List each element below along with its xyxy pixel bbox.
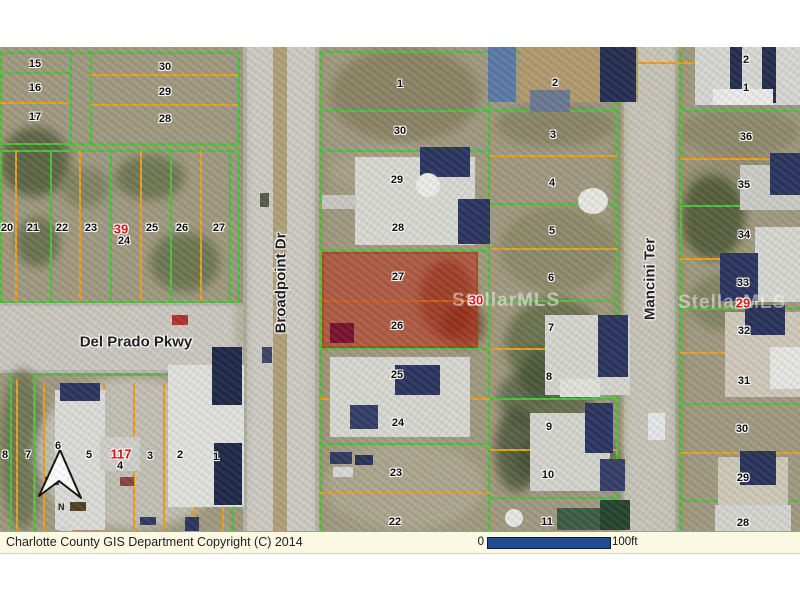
building-footprint	[322, 195, 356, 209]
lot-number: 4	[549, 177, 555, 189]
parcel-boundary	[490, 497, 618, 499]
lot-number: 4	[117, 460, 123, 472]
lot-number: 7	[25, 449, 31, 461]
vegetation-patch	[680, 175, 745, 260]
parcel-boundary	[110, 150, 112, 301]
building-footprint	[60, 383, 100, 401]
building-footprint	[578, 188, 608, 214]
lot-number: 29	[159, 86, 171, 98]
building-footprint	[598, 315, 628, 377]
lot-number: 28	[392, 222, 404, 234]
building-footprint	[416, 173, 440, 197]
parcel-boundary	[170, 150, 172, 301]
block-number: 39	[114, 222, 128, 237]
lot-number: 28	[159, 113, 171, 125]
parcel-boundary	[0, 150, 240, 152]
lot-number: 5	[549, 225, 555, 237]
lot-number: 30	[736, 423, 748, 435]
parcel-boundary	[490, 398, 618, 400]
parcel-boundary	[320, 348, 490, 350]
building-footprint	[70, 502, 86, 511]
street-label-mancini: Mancini Ter	[642, 238, 659, 320]
lot-number: 24	[392, 417, 404, 429]
lot-number: 6	[548, 272, 554, 284]
block-number: 117	[111, 447, 132, 462]
building-footprint	[648, 413, 665, 440]
lot-number: 3	[550, 129, 556, 141]
building-footprint	[585, 403, 613, 453]
parcel-boundary	[490, 248, 618, 250]
vegetation-patch	[60, 167, 110, 207]
lot-number: 17	[29, 111, 41, 123]
building-footprint	[505, 509, 523, 527]
lot-number: 26	[176, 222, 188, 234]
building-footprint	[355, 455, 373, 465]
building-footprint	[755, 227, 800, 302]
parcel-boundary	[229, 150, 231, 301]
lot-number: 36	[740, 131, 752, 143]
building-footprint	[262, 347, 272, 363]
lot-number: 35	[738, 179, 750, 191]
lot-number: 1	[743, 82, 749, 94]
lot-number: 1	[397, 78, 403, 90]
building-footprint	[600, 459, 625, 491]
building-footprint	[212, 347, 242, 405]
lot-number: 3	[147, 450, 153, 462]
lot-number: 29	[391, 174, 403, 186]
lot-number: 2	[743, 54, 749, 66]
lot-number: 21	[27, 222, 39, 234]
lot-number: 25	[146, 222, 158, 234]
lot-number: 2	[552, 77, 558, 89]
building-footprint	[120, 477, 134, 486]
parcel-boundary	[490, 155, 618, 157]
north-arrow-icon	[36, 450, 84, 500]
parcel-boundary	[10, 373, 12, 531]
building-footprint	[333, 467, 353, 477]
lot-number: 20	[1, 222, 13, 234]
parcel-boundary	[0, 102, 70, 104]
gis-map-window: Broadpoint Dr Del Prado Pkwy Mancini Ter…	[0, 0, 800, 600]
lot-number: 27	[213, 222, 225, 234]
lot-number: 30	[394, 125, 406, 137]
lot-number: 23	[85, 222, 97, 234]
parcel-boundary	[238, 52, 240, 145]
building-footprint	[185, 517, 199, 531]
map-canvas[interactable]: Broadpoint Dr Del Prado Pkwy Mancini Ter…	[0, 47, 800, 531]
lot-number: 26	[391, 320, 403, 332]
vegetation-patch	[150, 232, 220, 292]
parcel-boundary	[140, 150, 142, 301]
lot-number: 24	[118, 235, 130, 247]
lot-number: 2	[177, 449, 183, 461]
building-footprint	[770, 153, 800, 195]
lot-number: 8	[546, 371, 552, 383]
building-footprint	[458, 199, 490, 244]
block-number: 30	[469, 293, 483, 308]
parcel-boundary	[320, 443, 490, 445]
scale-bar	[487, 537, 611, 549]
lot-number: 7	[548, 322, 554, 334]
building-footprint	[600, 500, 630, 530]
lot-number: 10	[542, 469, 554, 481]
lot-number: 16	[29, 82, 41, 94]
building-footprint	[172, 315, 188, 325]
building-footprint	[530, 90, 570, 112]
block-number: 29	[736, 296, 750, 311]
lot-number: 15	[29, 58, 41, 70]
parcel-boundary	[320, 492, 490, 494]
lot-number: 28	[737, 517, 749, 529]
lot-number: 22	[389, 516, 401, 528]
parcel-boundary	[0, 72, 70, 74]
parcel-boundary	[70, 52, 72, 145]
building-footprint	[600, 47, 636, 102]
parcel-boundary	[90, 52, 92, 145]
parcel-boundary	[680, 110, 800, 112]
parcel-boundary	[79, 150, 81, 301]
building-footprint	[560, 379, 600, 397]
scale-end-label: 100ft	[612, 536, 638, 548]
lot-number: 29	[737, 472, 749, 484]
parcel-boundary	[200, 150, 202, 301]
parcel-boundary	[15, 150, 17, 301]
watermark: StellarMLS	[678, 292, 786, 314]
lot-number: 22	[56, 222, 68, 234]
parcel-boundary	[50, 150, 52, 301]
building-footprint	[715, 505, 791, 531]
parcel-boundary	[0, 52, 2, 145]
lot-number: 9	[546, 421, 552, 433]
building-footprint	[330, 323, 354, 343]
parcel-boundary	[16, 379, 18, 531]
lot-number: 23	[390, 467, 402, 479]
building-footprint	[330, 452, 352, 464]
scale-start-label: 0	[478, 536, 484, 548]
parcel-boundary	[90, 104, 238, 106]
north-arrow-label: N	[58, 502, 65, 512]
parcel-boundary	[0, 143, 240, 145]
parcel-boundary	[320, 110, 490, 112]
parcel-boundary	[0, 301, 240, 303]
statusbar: Charlotte County GIS Department Copyrigh…	[0, 531, 800, 554]
parcel-boundary	[90, 74, 238, 76]
copyright-text: Charlotte County GIS Department Copyrigh…	[6, 535, 303, 549]
lot-number: 11	[541, 516, 553, 528]
building-footprint	[350, 405, 378, 429]
lot-number: 30	[159, 61, 171, 73]
parcel-boundary	[0, 52, 240, 54]
lot-number: 32	[738, 325, 750, 337]
lot-number: 1	[213, 451, 219, 463]
lot-number: 31	[738, 375, 750, 387]
street-label-del-prado: Del Prado Pkwy	[80, 334, 193, 351]
lot-number: 27	[392, 271, 404, 283]
parcel-boundary	[680, 51, 682, 531]
building-footprint	[770, 347, 800, 389]
street-label-broadpoint: Broadpoint Dr	[273, 233, 290, 334]
lot-number: 33	[737, 277, 749, 289]
vegetation-patch	[115, 155, 185, 200]
parcel-boundary	[238, 150, 240, 303]
lot-number: 25	[391, 369, 403, 381]
lot-number: 34	[738, 229, 750, 241]
building-footprint	[488, 47, 516, 102]
building-footprint	[260, 193, 269, 207]
parcel-boundary	[680, 403, 800, 405]
lot-number: 5	[86, 449, 92, 461]
building-footprint	[140, 517, 156, 525]
lot-number: 8	[2, 449, 8, 461]
